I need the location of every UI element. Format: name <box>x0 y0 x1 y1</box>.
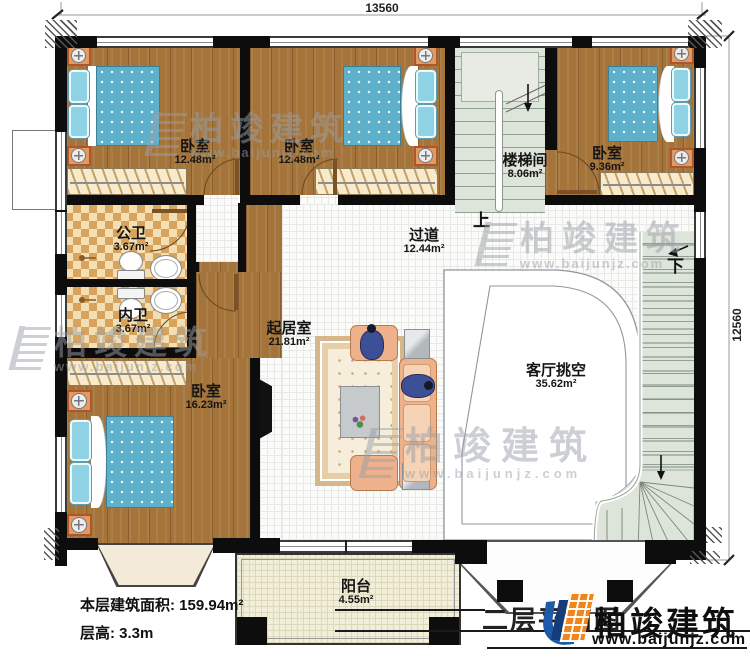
wall <box>55 538 98 550</box>
bed-bedroom1 <box>96 66 160 146</box>
window <box>694 212 706 258</box>
wardrobe <box>600 172 694 196</box>
lamp-icon <box>71 517 87 533</box>
pillow <box>672 68 690 101</box>
brand-url: www.baijunjz.com <box>592 631 746 649</box>
window <box>694 68 706 148</box>
hatch-mark <box>44 528 59 560</box>
wardrobe <box>67 360 187 386</box>
window <box>55 132 67 210</box>
room-label-bedroom2: 卧室12.48m² <box>279 139 320 167</box>
sliding-door-break <box>345 540 347 553</box>
wall <box>187 262 199 272</box>
lamp-icon <box>71 148 86 163</box>
bay-pillar <box>455 540 487 564</box>
room-label-void: 客厅挑空35.62m² <box>526 363 586 391</box>
dimension-right: 12560 <box>730 295 744 355</box>
room-label-bedroom4: 卧室16.23m² <box>186 384 227 412</box>
room-label-public-bath: 公卫3.67m² <box>114 226 149 254</box>
wall <box>240 36 250 205</box>
lamp-icon <box>418 148 433 163</box>
room-label-bedroom3: 卧室9.36m² <box>590 146 625 174</box>
table-flowers <box>350 414 368 428</box>
wall <box>338 195 455 205</box>
hatch-mark <box>45 20 77 48</box>
stairs-up-label: 上 <box>473 206 490 231</box>
person-head <box>367 324 376 333</box>
side-table <box>404 329 430 359</box>
balcony-pillar <box>237 617 267 645</box>
pillow <box>70 420 91 461</box>
vestibule-door-threshold <box>199 262 237 272</box>
wall <box>545 36 557 150</box>
watermark-logo-icon <box>9 326 52 370</box>
lamp-icon <box>418 48 433 63</box>
stairs-down-label: 下 <box>667 252 684 277</box>
room-label-private-bath: 内卫3.67m² <box>116 308 151 336</box>
title-block-line <box>335 609 485 611</box>
window <box>460 36 572 48</box>
sofa-cushion <box>403 404 431 442</box>
wall <box>545 195 706 205</box>
lamp-icon <box>674 150 689 165</box>
hatch-mark <box>688 20 722 48</box>
sofa-cushion <box>403 444 431 482</box>
pillow <box>70 463 91 504</box>
lamp-icon <box>71 393 87 409</box>
room-label-bedroom1: 卧室12.48m² <box>175 139 216 167</box>
sink-icon <box>150 255 182 282</box>
window <box>270 36 428 48</box>
wall <box>213 538 280 553</box>
window <box>55 295 67 337</box>
brand-logo <box>543 592 591 650</box>
dimension-top: 13560 <box>352 1 412 15</box>
pillow <box>69 70 89 103</box>
toilet-icon <box>119 251 143 272</box>
lamp-icon <box>674 46 689 61</box>
person-head <box>424 381 433 390</box>
bed-bedroom4 <box>106 416 174 508</box>
wall <box>65 348 196 358</box>
floor-height-text: 层高: 3.3m <box>80 622 153 643</box>
wall <box>187 205 196 358</box>
room-label-living: 起居室21.81m² <box>266 321 311 349</box>
coffee-table <box>340 386 380 438</box>
room-label-corridor: 过道12.44m² <box>404 228 445 256</box>
person-sitting <box>360 330 384 360</box>
bay-pillar <box>497 580 523 602</box>
wall <box>250 358 260 545</box>
floor-wood-strip <box>246 205 282 272</box>
window <box>592 36 688 48</box>
floor-door-threshold2 <box>300 195 338 205</box>
pillow <box>69 105 89 138</box>
pillow <box>416 105 436 138</box>
tv-icon <box>259 379 272 439</box>
wardrobe <box>67 168 187 195</box>
floor-corridor-niche <box>196 195 238 262</box>
window <box>97 36 213 48</box>
stair-rail <box>495 90 503 212</box>
room-label-stairwell: 楼梯间8.06m² <box>502 153 547 181</box>
pillow <box>416 70 436 103</box>
facade-ledge <box>12 130 56 210</box>
bed-bedroom3 <box>608 66 658 142</box>
room-label-balcony: 阳台4.55m² <box>339 579 374 607</box>
bed-bedroom2 <box>343 66 401 146</box>
wall <box>65 195 204 205</box>
wall <box>238 203 246 272</box>
window <box>55 212 67 254</box>
hatch-mark <box>706 527 722 543</box>
sink-icon <box>150 287 182 314</box>
wall <box>65 279 187 287</box>
wardrobe <box>315 168 438 195</box>
wall <box>240 195 300 205</box>
wall <box>412 540 458 553</box>
wall <box>445 36 455 205</box>
hatch-mark <box>690 551 720 564</box>
lamp-icon <box>71 48 86 63</box>
floor-area-text: 本层建筑面积: 159.94m² <box>80 594 243 615</box>
sofa-single-bottom <box>350 455 398 491</box>
pillow <box>672 103 690 136</box>
floor-plan-page: 卧室12.48m² 卧室12.48m² 楼梯间8.06m² 卧室9.36m² 公… <box>0 0 750 663</box>
window <box>55 437 67 512</box>
